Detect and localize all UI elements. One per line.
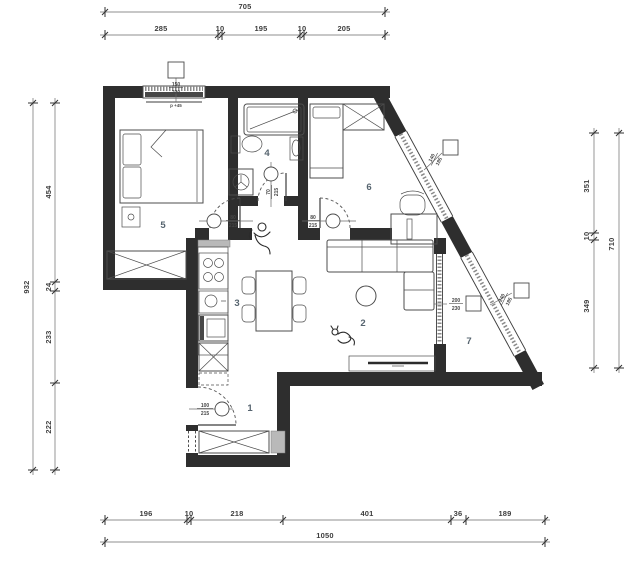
door-width: 100 [201, 403, 210, 409]
dim-bottom-seg: 36 [454, 509, 463, 518]
dining-table-icon [242, 271, 306, 331]
dim-right-overall: 710 [607, 237, 616, 250]
wall-bedroom-south [103, 278, 198, 290]
dim-top-seg: 285 [154, 24, 167, 33]
wall-room6-left [298, 228, 320, 240]
windows-glazing [143, 86, 526, 453]
floor-plan-drawing: 705 285 10 195 10 205 932 454 24 233 222… [0, 0, 642, 561]
nightstand-icon [122, 207, 140, 227]
dim-left-overall: 932 [22, 280, 31, 293]
wardrobe-icon [343, 104, 384, 130]
entry-furniture [199, 431, 285, 453]
wall-bedroom-door-jamb-right [228, 228, 252, 240]
door-height: 215 [309, 223, 318, 229]
dimension-top: 705 285 10 195 10 205 [100, 2, 390, 40]
wall-window-pier-top [434, 238, 446, 254]
wall-room6-right [350, 228, 392, 240]
entry-sidelight-icon [186, 431, 198, 453]
parapet-note: p +45 [170, 103, 182, 108]
double-bed-icon [120, 130, 203, 203]
door-width: 80 [310, 215, 316, 221]
bedroom-door-tag: 80 215 [199, 214, 253, 229]
dim-left-seg: 24 [44, 282, 53, 291]
window-height: 185 [505, 296, 514, 306]
fridge-icon [199, 343, 228, 371]
tv-stand-icon [349, 356, 435, 371]
wall-living-bottom [277, 372, 455, 386]
dimension-bottom: 196 10 218 401 36 189 1050 [100, 509, 550, 547]
wardrobe-icon [107, 251, 186, 279]
door-width: 70 [266, 189, 272, 195]
bathroom-door-tag: 70 215 [264, 162, 280, 207]
dim-bottom-seg: 218 [230, 509, 243, 518]
wall-left [103, 86, 115, 290]
oven-icon [199, 315, 228, 341]
counter-return-icon [198, 240, 230, 247]
door-height: 215 [201, 411, 210, 417]
dim-bottom-seg: 10 [185, 509, 194, 518]
room-label-4: 4 [264, 148, 270, 159]
pillow-icon [123, 134, 141, 165]
wall-bath-south-left [238, 196, 258, 206]
wall-window-pier-bottom [434, 344, 446, 372]
dim-bottom-seg: 196 [139, 509, 152, 518]
window-height: 230 [452, 306, 461, 312]
wall-top-right [205, 86, 390, 98]
doors [198, 173, 350, 425]
single-bed-icon [310, 104, 343, 178]
kitchen-sink-icon [199, 291, 228, 313]
blanket-fold-icon [151, 130, 166, 157]
room-label-5: 5 [160, 220, 166, 231]
dim-left-seg: 222 [44, 420, 53, 433]
wall-bedroom-right [228, 98, 238, 228]
entry-closet-icon [199, 431, 285, 453]
dim-bottom-seg: 401 [360, 509, 373, 518]
dim-right-seg: 10 [582, 232, 591, 241]
dim-top-seg: 10 [298, 24, 307, 33]
pillow-icon [123, 167, 141, 198]
bedroom-window-tag: 150 220 p +45 [168, 62, 184, 108]
dim-right-seg: 349 [582, 299, 591, 312]
room-label-3: 3 [234, 298, 239, 309]
dim-bottom-seg: 189 [498, 509, 511, 518]
room-label-6: 6 [366, 182, 371, 193]
window-height: 185 [435, 156, 444, 166]
shower-icon [244, 104, 304, 135]
cabinet-dashed-icon [199, 373, 228, 385]
wall-bedroom-door-jamb-left [195, 228, 209, 240]
coffee-table-icon [356, 286, 376, 306]
wall-entry-left-upper [186, 238, 198, 388]
dimension-right: 351 10 349 710 [582, 128, 624, 373]
window-height: 220 [172, 90, 181, 96]
dim-right-seg: 351 [582, 179, 591, 192]
room-label-2: 2 [360, 318, 365, 329]
living-furniture [242, 240, 435, 371]
wall-bath-right [298, 98, 308, 240]
room-label-7: 7 [466, 336, 471, 347]
dim-top-seg: 10 [216, 24, 225, 33]
door-height: 215 [229, 223, 238, 229]
entry-door-tag: 100 215 [189, 402, 233, 417]
dim-left-seg: 454 [44, 185, 53, 199]
door-width: 80 [230, 215, 236, 221]
kitchen-furniture [198, 240, 230, 385]
dim-top-seg: 205 [337, 24, 350, 33]
dim-top-overall: 705 [238, 2, 251, 11]
sofa-icon [327, 240, 434, 310]
dimension-left: 932 454 24 233 222 [22, 98, 60, 475]
cat-icon [331, 326, 354, 345]
window-width: 150 [172, 82, 181, 88]
desk-chair-icon [400, 191, 425, 215]
dim-bottom-overall: 1050 [316, 531, 334, 540]
wall-entry-bottom [186, 455, 290, 467]
window-width: 200 [452, 298, 461, 304]
dim-top-seg: 195 [254, 24, 267, 33]
stove-icon [199, 253, 228, 289]
living-window-icon [437, 254, 443, 344]
person-icon [249, 223, 270, 254]
room6-window-tag: 140 185 [424, 140, 458, 170]
room-label-1: 1 [247, 403, 253, 414]
dim-left-seg: 233 [44, 330, 53, 343]
door-height: 215 [274, 188, 280, 197]
floor-plan-page: 705 285 10 195 10 205 932 454 24 233 222… [0, 0, 642, 561]
